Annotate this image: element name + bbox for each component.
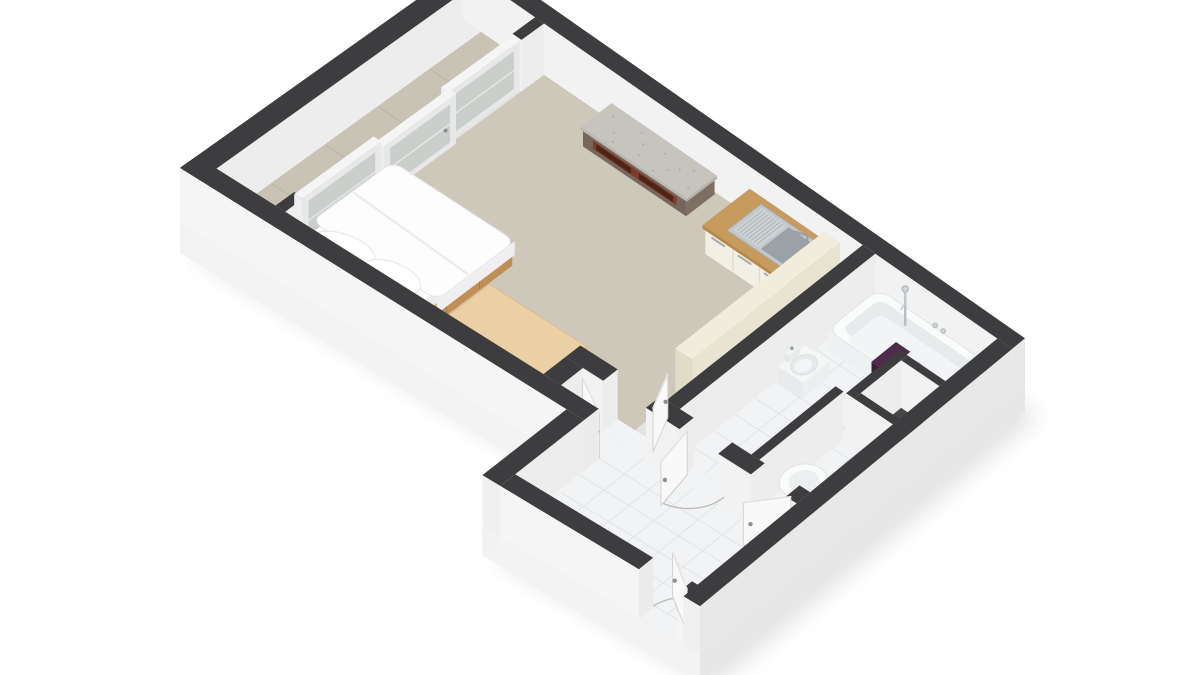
floorplan-3d-render <box>0 0 1200 675</box>
floorplan-stage <box>0 0 1200 675</box>
